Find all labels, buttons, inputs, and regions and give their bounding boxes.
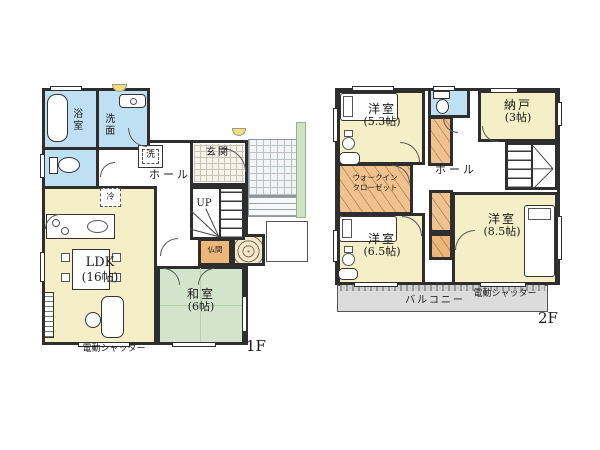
lamp-shade-icon (344, 130, 353, 137)
bathroom-label: 浴室 (70, 96, 82, 144)
closet-mid-lower (429, 233, 453, 260)
tv-board (44, 292, 54, 338)
shutter-label-2f: 電動シャッター (464, 289, 546, 300)
window-mark (490, 88, 518, 93)
toilet-tank-icon (433, 91, 450, 99)
closet-mid-upper (429, 190, 453, 233)
side-table-icon (85, 312, 101, 328)
ldk-size-label: (16帖) (60, 270, 140, 284)
stool-icon (338, 268, 358, 280)
toilet-tank-icon (49, 157, 58, 174)
fridge-label: 冷 (100, 192, 121, 201)
floor-label-2f: 2F (532, 310, 564, 328)
toilet-bowl-icon (58, 157, 80, 173)
wic-label-line2: クローゼット (341, 184, 409, 193)
floor-label-1f: 1F (240, 338, 272, 356)
window-mark (172, 342, 216, 347)
stove-burner-icon (61, 227, 69, 235)
window-mark (354, 282, 398, 287)
bedroom1-size-label: (5.3帖) (350, 116, 414, 129)
window-mark (352, 86, 394, 91)
ldk-name-label: LDK (60, 255, 140, 270)
laundry-label: 洗 (138, 150, 163, 161)
window-mark (557, 216, 562, 260)
window-mark (242, 296, 247, 332)
washitsu-size-label: (6帖) (168, 301, 234, 314)
stairs-2f-winder-line (530, 168, 553, 169)
bedroom2-size-label: (6.5帖) (350, 246, 414, 259)
stairs-1f-treads (219, 188, 243, 238)
hall-1f-label: ホール (146, 169, 194, 182)
sofa-icon (101, 296, 124, 338)
approach-planting (296, 122, 306, 218)
approach-steps (248, 196, 298, 217)
entrance-label: 玄関 (196, 147, 240, 159)
stairs-up-label: UP (192, 198, 216, 210)
shutter-label-1f: 電動シャッター (68, 344, 160, 355)
window-mark (50, 86, 82, 91)
window-mark (333, 108, 338, 142)
porch-light-icon (232, 128, 246, 136)
window-mark (333, 230, 338, 262)
butsuma-label: 仏間 (198, 246, 232, 255)
hall-2f-label: ホール (430, 164, 482, 177)
stool-icon (339, 152, 360, 165)
floorplan-canvas: 浴室 洗面 洗 ホール 玄関 UP 冷 LDK (16帖) 仏間 和室 (6帖)… (0, 0, 600, 450)
bathtub-icon (47, 94, 68, 142)
washbasin-drain-icon (130, 98, 137, 105)
window-mark (40, 252, 45, 282)
window-mark (480, 282, 526, 287)
washroom-label: 洗面 (102, 104, 114, 146)
window-mark (40, 154, 45, 178)
storage-size-label: (3帖) (488, 112, 548, 125)
kitchen-sink-icon (87, 220, 108, 233)
window-mark (433, 86, 455, 91)
stairs-2f-treads (507, 144, 533, 188)
bedroom3-size-label: (8.5帖) (468, 226, 536, 239)
exterior-box (266, 221, 308, 262)
balcony-label: バルコニー (398, 295, 472, 307)
wic-label-line1: ウォークイン (341, 174, 409, 183)
lamp-base-icon (342, 137, 355, 150)
porch-tile (248, 139, 298, 196)
toilet-bowl-icon (436, 99, 449, 114)
window-mark (557, 102, 562, 126)
